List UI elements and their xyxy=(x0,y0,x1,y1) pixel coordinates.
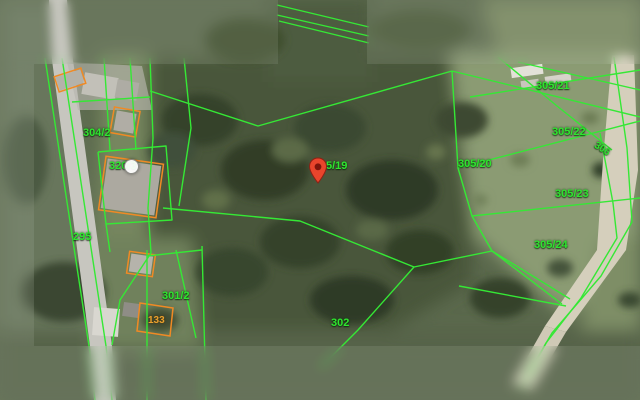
location-pin-icon[interactable] xyxy=(308,157,328,185)
parcel-label-305-23: 305/23 xyxy=(555,188,589,200)
parcel-label-5-19: 5/19 xyxy=(326,160,347,172)
parcel-label-305-22: 305/22 xyxy=(552,126,586,138)
blur-edge-left xyxy=(0,64,34,346)
blur-edge-top-right xyxy=(367,0,640,64)
parcel-label-305-20: 305/20 xyxy=(458,158,492,170)
parcel-label-295: 295 xyxy=(73,231,91,243)
parcel-label-302: 302 xyxy=(331,317,349,329)
blur-edge-top-left xyxy=(0,0,278,64)
parcel-label-304-2: 304/2 xyxy=(83,127,111,139)
parcel-label-301-2: 301/2 xyxy=(162,290,190,302)
blur-edge-bottom xyxy=(0,346,640,400)
map-viewport[interactable]: 304/2 320/3 295 301/2 302 5/19 305/20 30… xyxy=(0,0,640,400)
parcel-label-305-24: 305/24 xyxy=(534,239,568,251)
parcel-label-305-21: 305/21 xyxy=(536,80,570,92)
circle-marker-icon xyxy=(124,159,139,174)
building-label-133: 133 xyxy=(148,315,165,326)
